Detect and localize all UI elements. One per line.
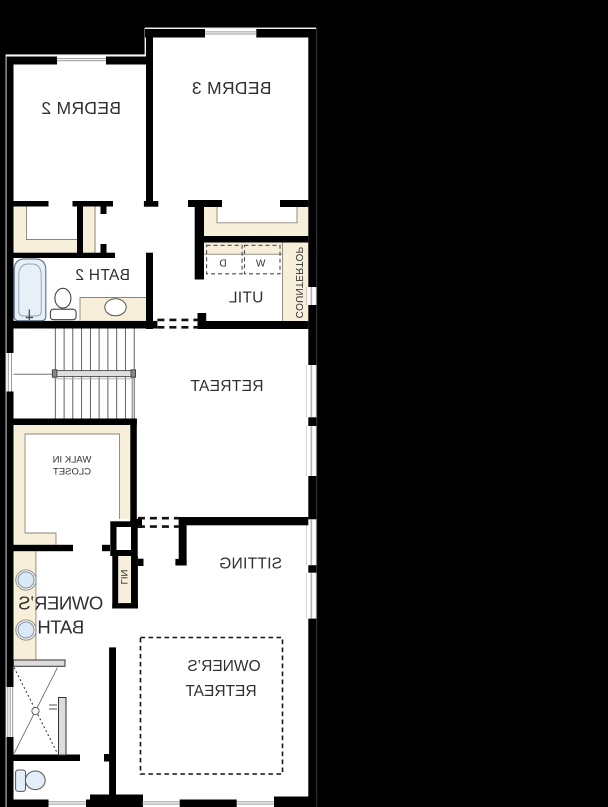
- svg-text:BATH: BATH: [38, 617, 84, 638]
- svg-text:SITTING: SITTING: [219, 556, 282, 573]
- svg-text:D: D: [219, 259, 226, 270]
- svg-text:CLOSET: CLOSET: [53, 467, 91, 478]
- svg-text:OWNER’S: OWNER’S: [187, 658, 260, 675]
- svg-text:BEDRM 2: BEDRM 2: [41, 98, 121, 118]
- svg-text:OWNER’S: OWNER’S: [19, 593, 104, 614]
- svg-text:RETREAT: RETREAT: [190, 378, 264, 395]
- svg-text:LIN: LIN: [118, 569, 129, 584]
- svg-text:RETREAT: RETREAT: [185, 683, 257, 700]
- svg-text:BATH 2: BATH 2: [75, 267, 130, 284]
- svg-text:UTIL: UTIL: [229, 290, 264, 307]
- svg-text:WALK IN: WALK IN: [53, 455, 92, 466]
- svg-text:BEDRM 3: BEDRM 3: [192, 78, 272, 98]
- svg-text:W: W: [255, 259, 265, 270]
- svg-text:COUNTERTOP: COUNTERTOP: [293, 247, 304, 319]
